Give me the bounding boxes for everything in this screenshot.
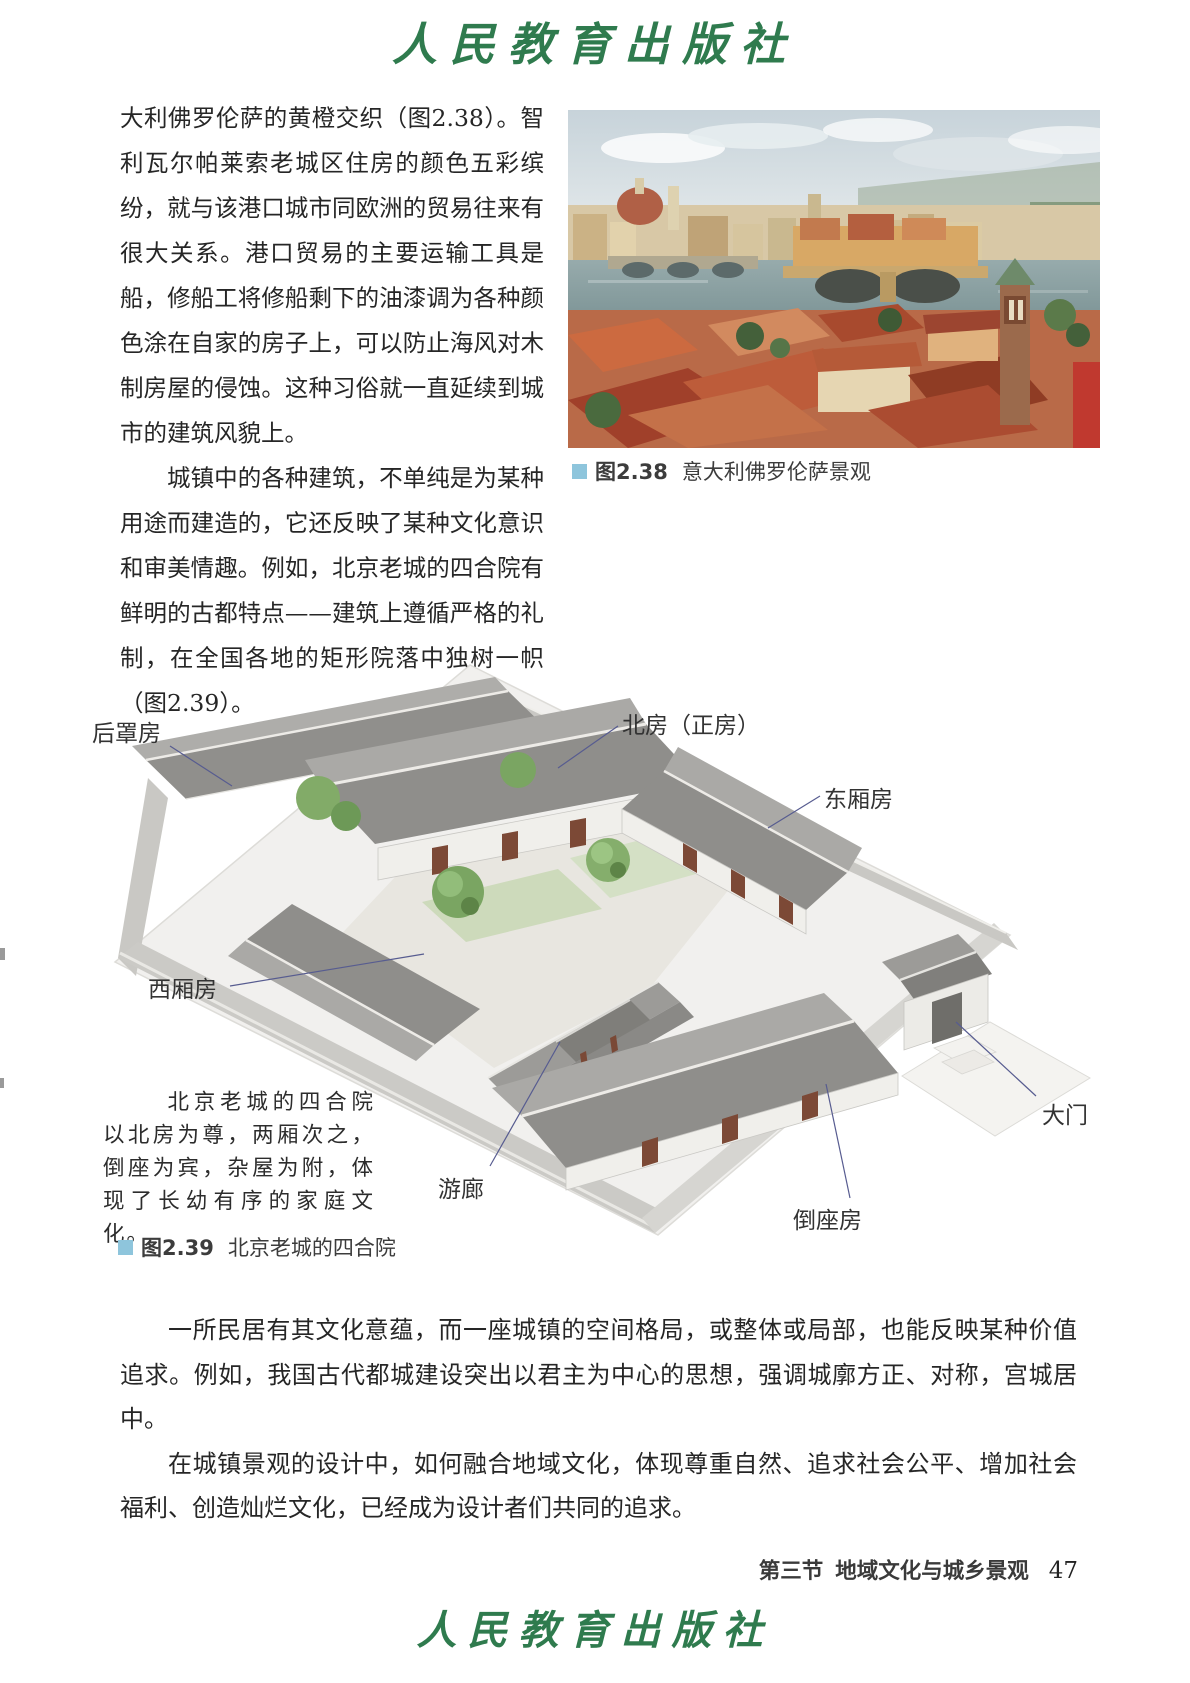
paragraph-4: 在城镇景观的设计中，如何融合地域文化，体现尊重自然、追求社会公平、增加社会福利、… bbox=[120, 1442, 1077, 1531]
far-bridge bbox=[608, 256, 758, 278]
footer-section: 第三节 bbox=[759, 1554, 824, 1585]
bottom-text-block: 一所民居有其文化意蕴，而一座城镇的空间格局，或整体或局部，也能反映某种价值追求。… bbox=[120, 1308, 1077, 1531]
red-building bbox=[1073, 362, 1100, 448]
diagram-label-rear-building: 后罩房 bbox=[92, 714, 161, 748]
figure-238-photo bbox=[568, 110, 1100, 448]
figure-239-title: 北京老城的四合院 bbox=[228, 1232, 396, 1262]
diagram-label-west-wing: 西厢房 bbox=[148, 970, 217, 1004]
scan-artifact bbox=[0, 1078, 4, 1088]
figure-239-note: 北京老城的四合院以北房为尊，两厢次之，倒座为宾，杂屋为附，体现了长幼有序的家庭文… bbox=[103, 1086, 375, 1251]
figure-238-caption: 图2.38 意大利佛罗伦萨景观 bbox=[572, 456, 871, 486]
paragraph-3: 一所民居有其文化意蕴，而一座城镇的空间格局，或整体或局部，也能反映某种价值追求。… bbox=[120, 1308, 1077, 1442]
page-footer: 第三节 地域文化与城乡景观 47 bbox=[759, 1554, 1078, 1585]
footer-chapter-title: 地域文化与城乡景观 bbox=[835, 1554, 1029, 1585]
campanile bbox=[668, 186, 679, 230]
figure-238-title: 意大利佛罗伦萨景观 bbox=[682, 456, 871, 486]
caption-marker-icon bbox=[118, 1240, 133, 1255]
textbook-page: 人民教育出版社 大利佛罗伦萨的黄橙交织（图2.38）。智利瓦尔帕莱索老城区住房的… bbox=[0, 0, 1190, 1683]
figure-239-caption: 图2.39 北京老城的四合院 bbox=[118, 1232, 396, 1262]
florence-photo-illustration bbox=[568, 110, 1100, 448]
body-text-column: 大利佛罗伦萨的黄橙交织（图2.38）。智利瓦尔帕莱索老城区住房的颜色五彩缤纷，就… bbox=[120, 96, 544, 726]
diagram-label-corridor: 游廊 bbox=[438, 1170, 484, 1204]
diagram-label-east-wing: 东厢房 bbox=[824, 780, 893, 814]
diagram-label-main-gate: 大门 bbox=[1042, 1096, 1088, 1130]
scan-artifact bbox=[0, 948, 5, 960]
publisher-logo-top: 人民教育出版社 bbox=[0, 8, 1190, 73]
page-number: 47 bbox=[1049, 1558, 1078, 1584]
figure-238-number: 图2.38 bbox=[595, 456, 668, 486]
caption-marker-icon bbox=[572, 464, 587, 479]
diagram-label-north-house: 北房（正房） bbox=[622, 706, 760, 740]
bell-tower bbox=[995, 258, 1035, 425]
paragraph-1: 大利佛罗伦萨的黄橙交织（图2.38）。智利瓦尔帕莱索老城区住房的颜色五彩缤纷，就… bbox=[120, 96, 544, 456]
publisher-logo-bottom: 人民教育出版社 bbox=[0, 1598, 1190, 1656]
figure-239-number: 图2.39 bbox=[141, 1232, 214, 1262]
diagram-label-reverse-house: 倒座房 bbox=[793, 1201, 862, 1235]
